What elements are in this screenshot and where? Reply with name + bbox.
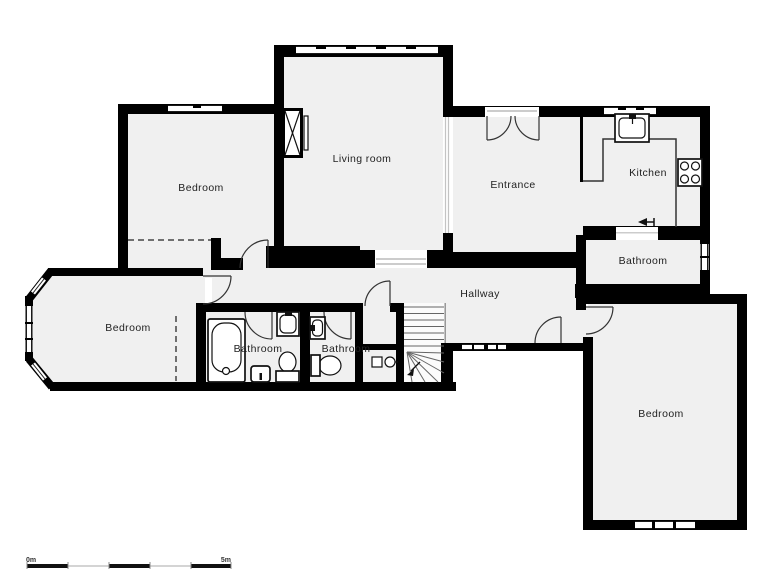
room-label-bathroom-middle: Bathroom bbox=[322, 343, 371, 355]
room-label-entrance: Entrance bbox=[490, 179, 535, 191]
window-bedroom-bottom-right bbox=[635, 521, 695, 529]
room-label-living-room: Living room bbox=[333, 153, 392, 165]
kitchen-bathroom-passage bbox=[616, 227, 658, 240]
room-label-bathroom-left: Bathroom bbox=[234, 343, 283, 355]
stove bbox=[678, 159, 702, 186]
kitchen-sink bbox=[615, 114, 649, 142]
room-label-bedroom-top-left: Bedroom bbox=[178, 182, 223, 194]
toilet-bathroom-middle bbox=[311, 355, 341, 376]
floorplan-drawing: Bedroom Living room Entrance Kitchen Bat… bbox=[0, 0, 768, 576]
entrance-door-gap bbox=[485, 107, 539, 117]
room-label-bedroom-bottom-right: Bedroom bbox=[638, 408, 683, 420]
sink-bathroom-middle bbox=[310, 317, 325, 339]
stairwell-floor bbox=[403, 303, 444, 383]
living-hallway-opening bbox=[375, 250, 427, 268]
room-label-hallway: Hallway bbox=[460, 288, 500, 300]
window-living-room bbox=[296, 45, 438, 54]
window-living-entrance-partition bbox=[443, 117, 453, 233]
floorplan-canvas: Bedroom Living room Entrance Kitchen Bat… bbox=[0, 0, 768, 576]
sink-bathroom-left bbox=[277, 312, 299, 336]
window-bathroom-top-right bbox=[701, 244, 709, 270]
fireplace bbox=[282, 108, 308, 158]
room-label-bedroom-left: Bedroom bbox=[105, 322, 150, 334]
scale-end-label: 5m bbox=[221, 557, 231, 564]
window-bedroom-top-left bbox=[168, 104, 222, 112]
room-label-kitchen: Kitchen bbox=[629, 167, 667, 179]
window-hallway-south bbox=[462, 344, 506, 350]
room-label-bathroom-top-right: Bathroom bbox=[619, 255, 668, 267]
bidet-cabinet bbox=[251, 366, 270, 382]
scale-start-label: 0m bbox=[26, 557, 36, 564]
scale-bar: 0m 5m bbox=[26, 557, 231, 569]
